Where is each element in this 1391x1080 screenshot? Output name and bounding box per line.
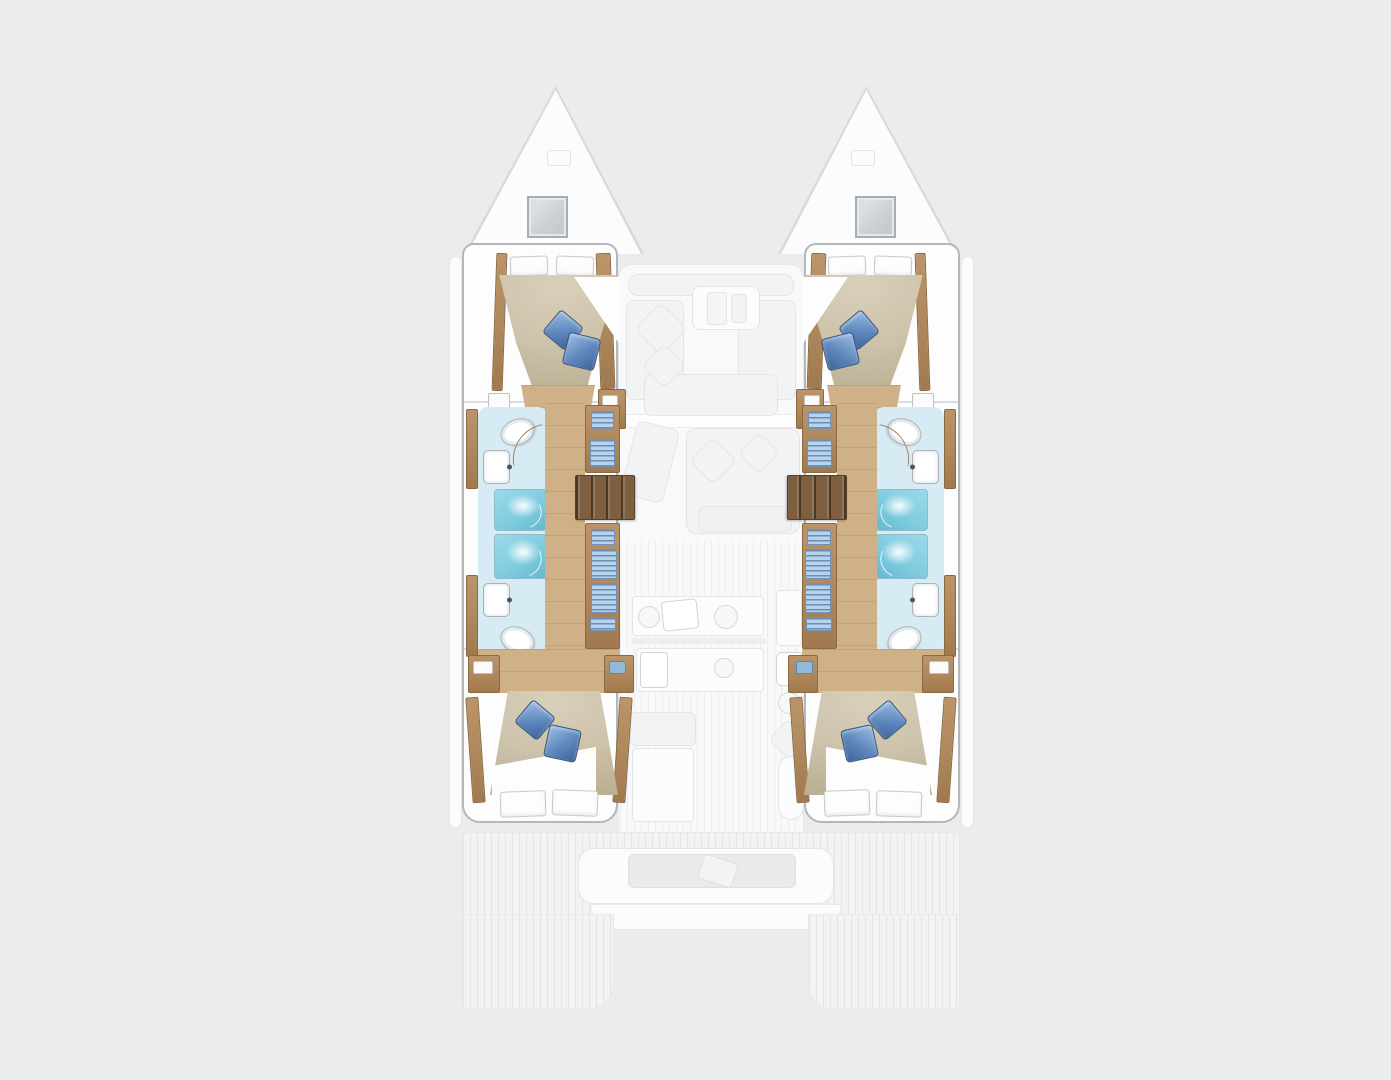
stove-burner-icon [714, 605, 738, 629]
port-side-deck [449, 256, 462, 828]
locker [590, 439, 615, 467]
sink [483, 583, 510, 617]
starboard-hull [804, 243, 960, 823]
white-pillow [500, 790, 547, 818]
starboard-anchor-locker [851, 150, 875, 166]
aft-cabin-side-rail [936, 697, 956, 804]
white-pillow [824, 789, 871, 817]
galley-sink [661, 598, 700, 632]
forward-lounge-table [692, 286, 760, 330]
outboard-cabinet [944, 409, 956, 489]
locker [805, 549, 831, 579]
salon-table [632, 748, 694, 822]
galley-sink [640, 652, 668, 688]
stove-burner-icon [638, 606, 660, 628]
sink [483, 450, 510, 484]
galley-counter-side [776, 590, 802, 646]
starboard-bow-deck [778, 86, 958, 254]
outboard-cabinet [466, 575, 478, 657]
nightstand-item [473, 661, 493, 674]
outboard-cabinet [944, 575, 956, 657]
locker [806, 617, 832, 631]
port-bow-deck [464, 86, 644, 254]
forward-cabin-side-rail [915, 253, 931, 391]
locker [591, 583, 617, 613]
locker [591, 549, 617, 579]
shower-stall [875, 534, 928, 579]
port-anchor-locker [547, 150, 571, 166]
locker [807, 439, 832, 467]
blue-pillow [543, 724, 582, 763]
table-item [707, 292, 727, 325]
white-pillow [874, 255, 913, 276]
locker [805, 583, 831, 613]
white-pillow [552, 789, 599, 817]
port-swim-platform [462, 914, 614, 1010]
companionway-steps [787, 475, 847, 520]
table-item [731, 294, 747, 323]
starboard-side-deck [961, 256, 974, 828]
locker [807, 529, 831, 545]
port-bow-hatch-icon [527, 196, 568, 238]
shower-stall [494, 489, 547, 531]
port-hull [462, 243, 618, 823]
stove-burner-icon [714, 658, 734, 678]
white-pillow [556, 255, 595, 276]
counter-edge [632, 638, 766, 644]
locker [591, 529, 615, 545]
sink [912, 450, 939, 484]
salon-table-back [630, 712, 696, 746]
salon-sofa-seat [698, 506, 792, 532]
locker [590, 617, 616, 631]
catamaran-floorplan [0, 0, 1391, 1080]
nightstand-item [796, 661, 813, 674]
companionway-steps [575, 475, 635, 520]
forward-cabin-side-rail [492, 253, 508, 391]
white-pillow [510, 255, 549, 276]
white-pillow [828, 255, 867, 276]
locker [808, 411, 831, 429]
shower-stall [875, 489, 928, 531]
cockpit-step [590, 904, 842, 930]
nightstand-item [929, 661, 949, 674]
starboard-bow-hatch-icon [855, 196, 896, 238]
sink [912, 583, 939, 617]
starboard-swim-platform [808, 914, 960, 1010]
white-pillow [876, 790, 923, 818]
nightstand-item [609, 661, 626, 674]
aft-cabin-side-rail [465, 697, 485, 804]
blue-pillow [840, 724, 879, 763]
locker [591, 411, 614, 429]
outboard-cabinet [466, 409, 478, 489]
